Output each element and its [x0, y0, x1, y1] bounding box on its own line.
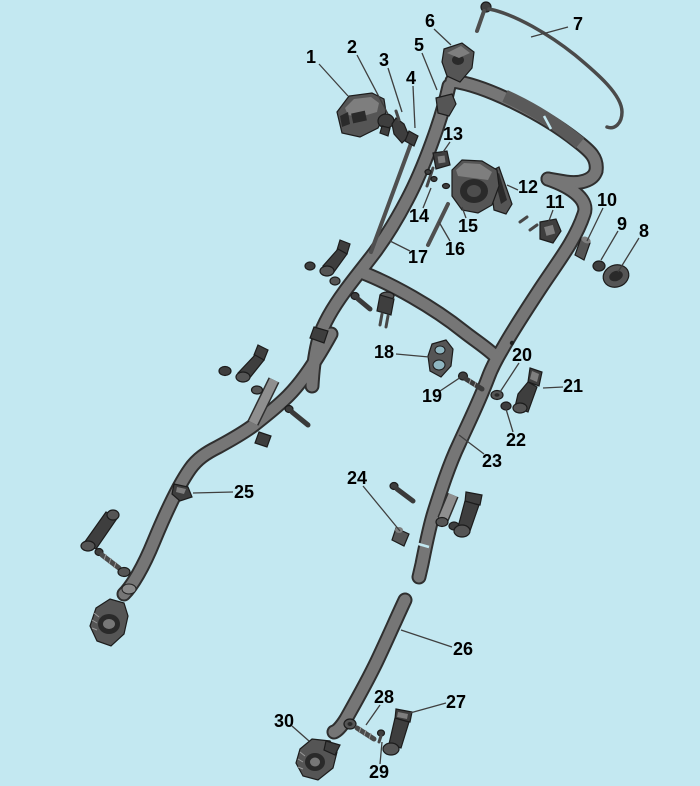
- left-mid-nut: [219, 367, 231, 376]
- callout-11-label[interactable]: 11: [545, 192, 564, 212]
- left-junction-washer: [330, 277, 340, 285]
- callout-13-label[interactable]: 13: [443, 124, 463, 144]
- callout-28-label[interactable]: 28: [374, 687, 394, 707]
- callout-2-label[interactable]: 2: [347, 37, 357, 57]
- callout-23-label[interactable]: 23: [482, 451, 502, 471]
- callout-24-label[interactable]: 24: [347, 468, 367, 488]
- callout-20-label[interactable]: 20: [512, 345, 532, 365]
- bottom-left-washer: [118, 568, 130, 577]
- callout-27-label[interactable]: 27: [446, 692, 466, 712]
- callout-17-label[interactable]: 17: [408, 247, 428, 267]
- part-22-nut: [501, 402, 511, 410]
- callout-26-label[interactable]: 26: [453, 639, 473, 659]
- callout-21-label[interactable]: 21: [563, 376, 583, 396]
- callout-3-label[interactable]: 3: [379, 50, 389, 70]
- exploded-view-svg: 1234567891011121314151617181920212223242…: [0, 0, 700, 786]
- part-9-knob: [593, 261, 605, 271]
- callout-29-label[interactable]: 29: [369, 762, 389, 782]
- callout-18-label[interactable]: 18: [374, 342, 394, 362]
- callout-14-label[interactable]: 14: [409, 206, 429, 226]
- part-20-washer: [491, 391, 503, 400]
- callout-30-label[interactable]: 30: [274, 711, 294, 731]
- callout-8-label[interactable]: 8: [639, 221, 649, 241]
- callout-4-label[interactable]: 4: [406, 68, 416, 88]
- callout-15-label[interactable]: 15: [458, 216, 478, 236]
- callout-25-label[interactable]: 25: [234, 482, 254, 502]
- part-15-grip-housing: [452, 160, 499, 213]
- callout-5-label[interactable]: 5: [414, 35, 424, 55]
- callout-12-label[interactable]: 12: [518, 177, 538, 197]
- callout-19-label[interactable]: 19: [422, 386, 442, 406]
- left-mid-washer: [252, 386, 263, 394]
- callout-10-label[interactable]: 10: [597, 190, 617, 210]
- callout-22-label[interactable]: 22: [506, 430, 526, 450]
- callout-1-label[interactable]: 1: [306, 47, 316, 67]
- callout-7-label[interactable]: 7: [573, 14, 583, 34]
- callout-6-label[interactable]: 6: [425, 11, 435, 31]
- bottom-left-tube-cap: [122, 584, 136, 594]
- left-junction-nut: [305, 262, 315, 270]
- right-clamp-washer: [436, 518, 448, 527]
- callout-9-label[interactable]: 9: [617, 214, 627, 234]
- parts-diagram: 1234567891011121314151617181920212223242…: [0, 0, 700, 786]
- callout-16-label[interactable]: 16: [445, 239, 465, 259]
